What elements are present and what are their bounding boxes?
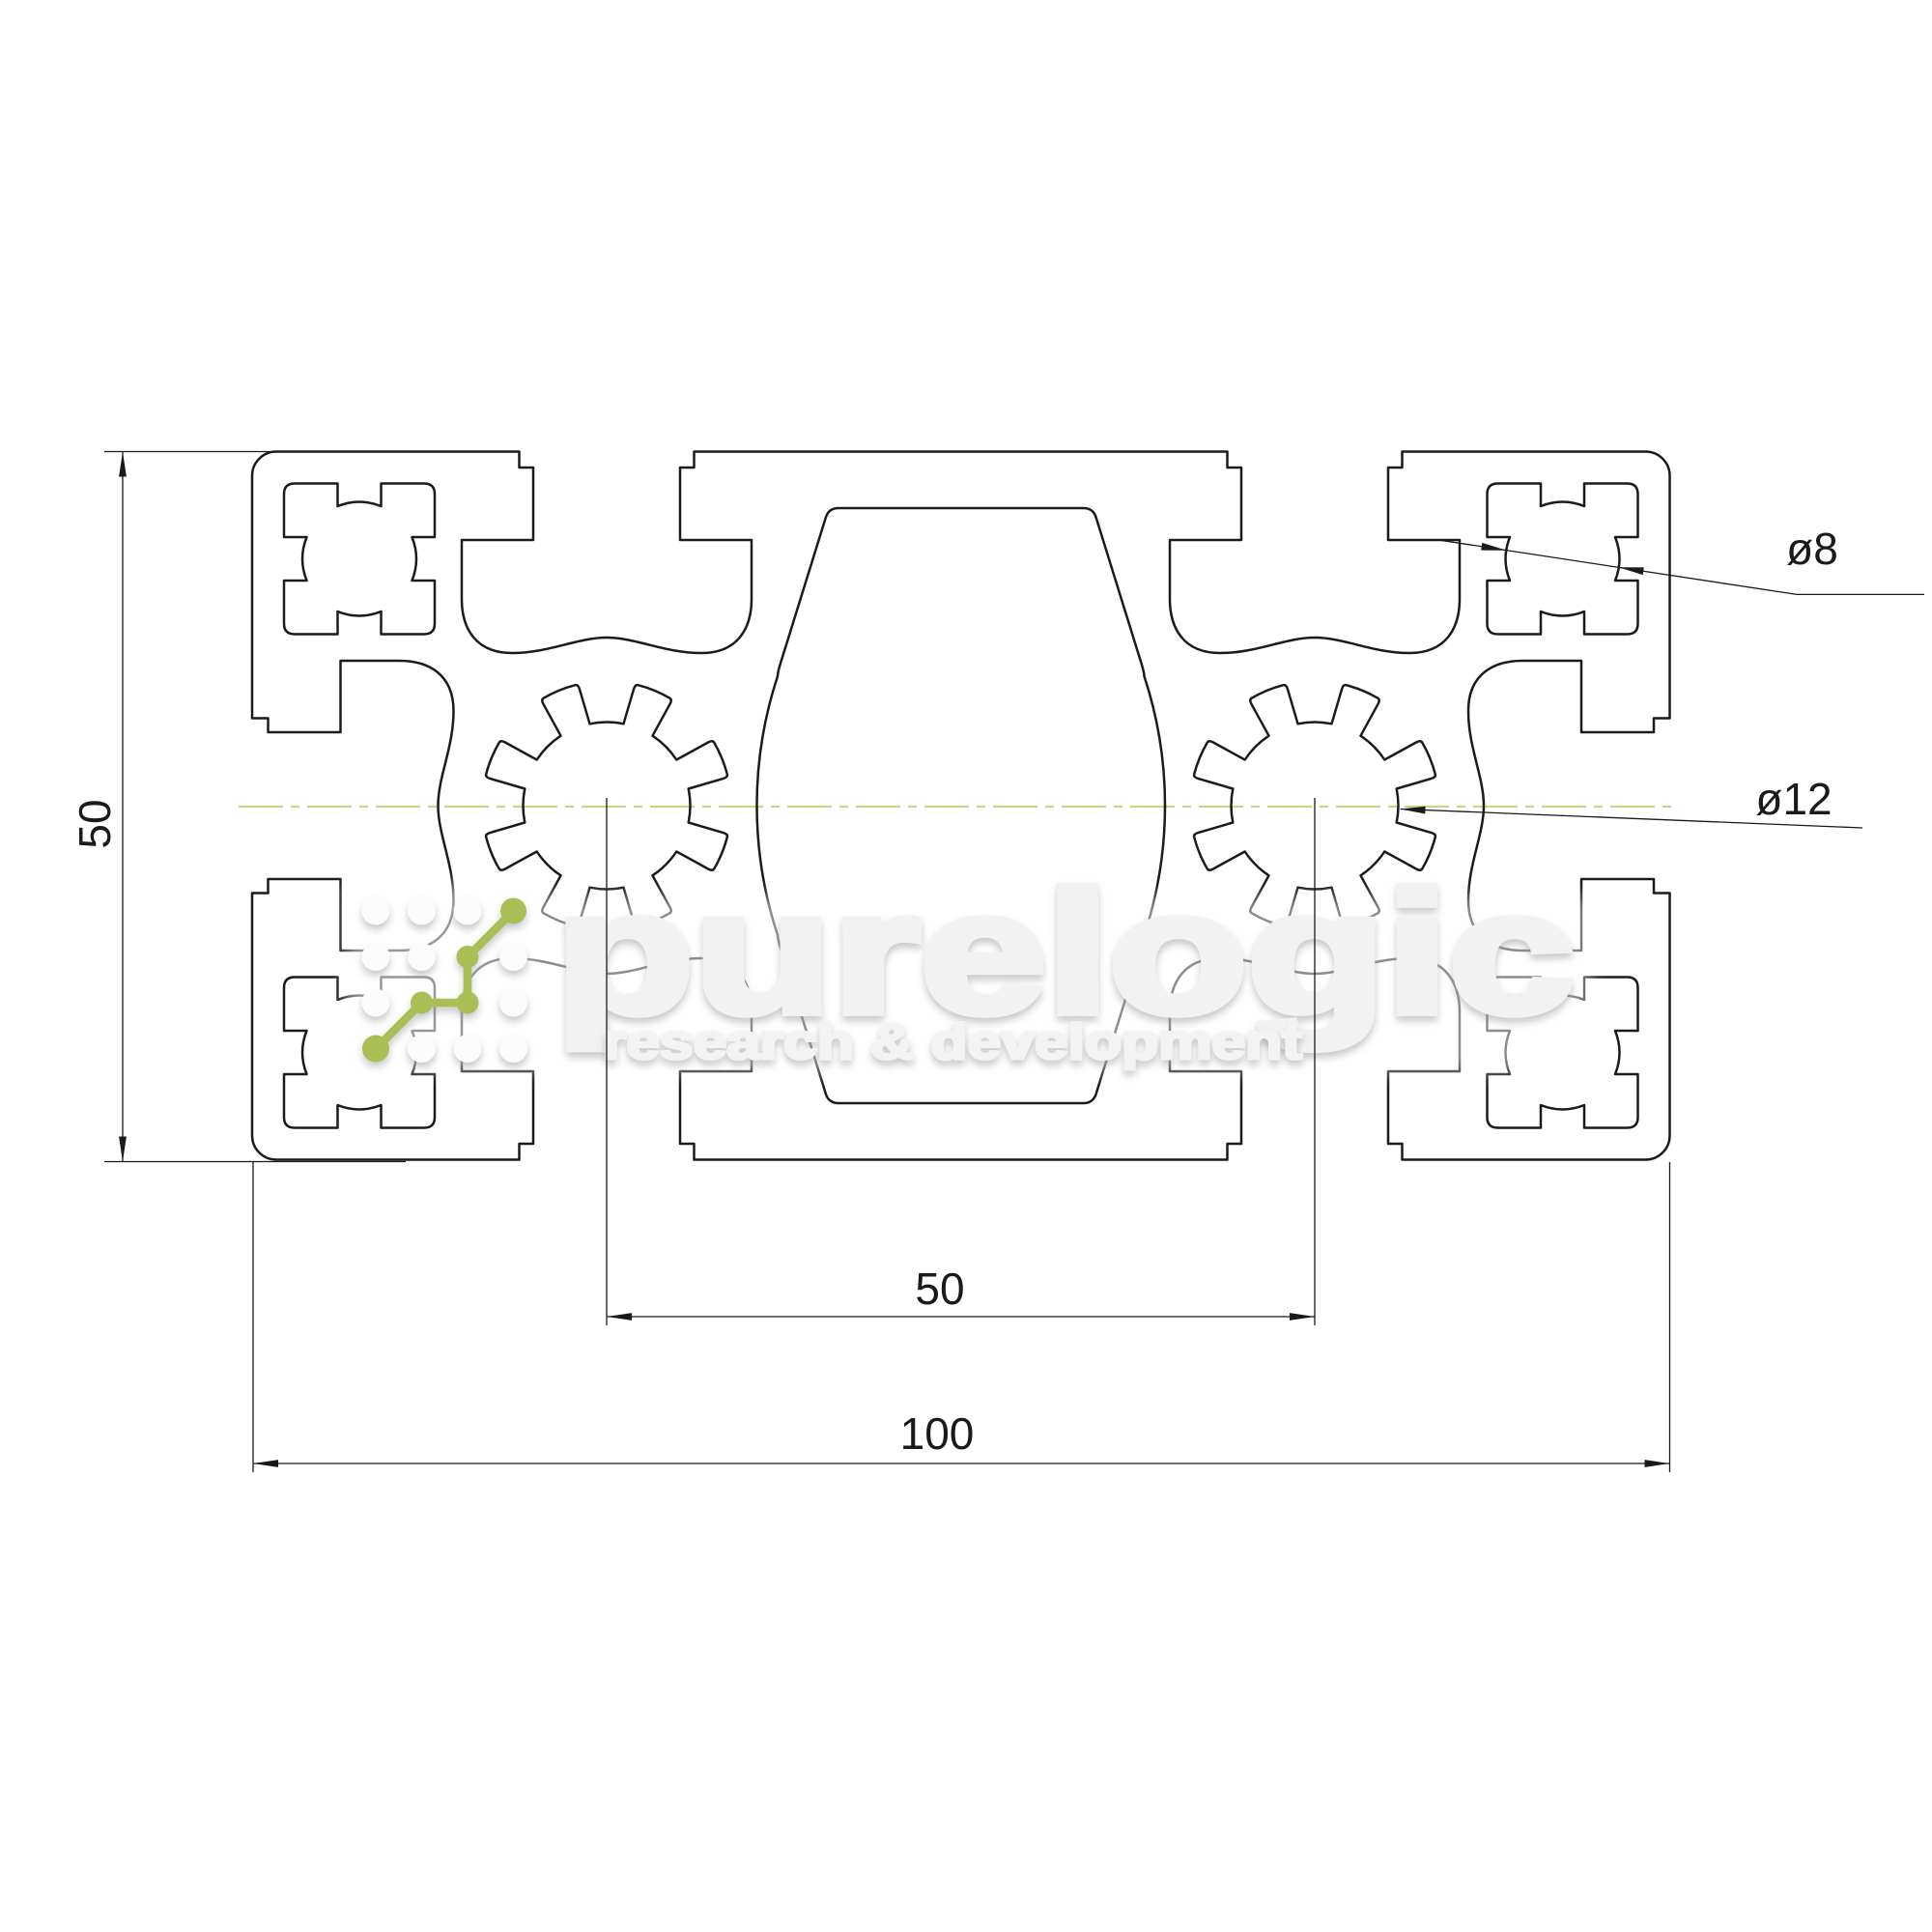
svg-text:research & development: research & development xyxy=(603,1014,1302,1070)
svg-text:50: 50 xyxy=(915,1264,964,1314)
svg-text:ø8: ø8 xyxy=(1786,524,1838,574)
svg-text:ø12: ø12 xyxy=(1755,774,1832,824)
svg-text:100: 100 xyxy=(900,1408,975,1459)
svg-text:50: 50 xyxy=(70,799,120,848)
